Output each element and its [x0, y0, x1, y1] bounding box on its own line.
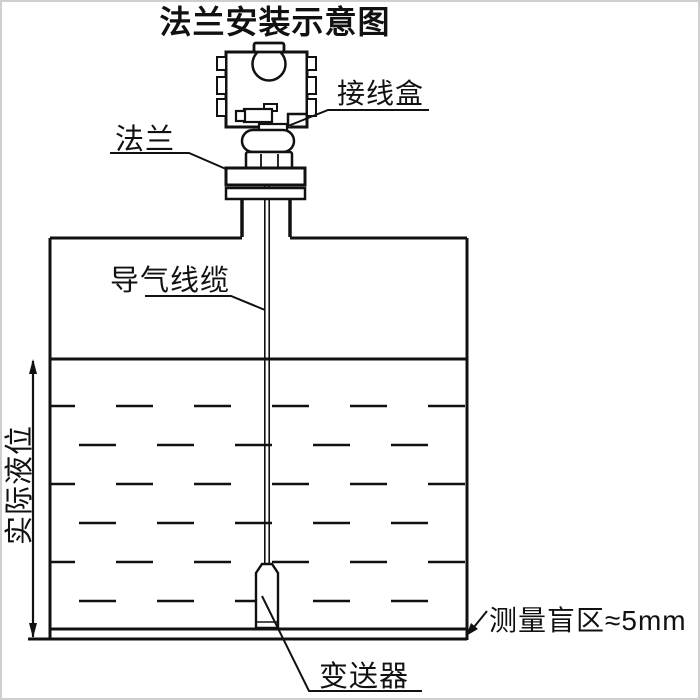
air-cable-leader-line	[145, 296, 265, 310]
arrow-down-icon	[29, 623, 37, 638]
arrow-up-icon	[29, 359, 37, 374]
tank-outline	[28, 238, 467, 640]
flange-top-plate	[226, 168, 305, 185]
transmitter-label: 变送器	[319, 660, 409, 693]
air-cable-label: 导气线缆	[110, 264, 230, 297]
junction-box-label: 接线盒	[337, 78, 424, 109]
display-cap-top	[254, 43, 284, 52]
transmitter-callout: 变送器	[262, 596, 422, 693]
blind-zone-callout: 测量盲区≈5mm	[466, 605, 687, 636]
air-cable	[265, 186, 269, 565]
diagram-title: 法兰安装示意图	[159, 4, 390, 40]
blind-zone-label: 测量盲区≈5mm	[489, 605, 687, 636]
flange-label: 法兰	[115, 123, 175, 156]
actual-level-label: 实际液位	[3, 425, 36, 545]
transmitter-probe	[256, 564, 278, 628]
diagram-canvas: 法兰安装示意图	[0, 0, 700, 700]
flange-lower-plate	[226, 188, 305, 199]
connection-barrel	[242, 130, 294, 152]
hex-nut	[246, 152, 292, 169]
flange-installation-diagram: 法兰安装示意图	[0, 0, 700, 700]
level-dimension: 实际液位	[3, 359, 37, 638]
air-cable-callout: 导气线缆	[110, 264, 265, 310]
flange-callout: 法兰	[110, 123, 226, 169]
transmitter-head	[217, 43, 316, 169]
